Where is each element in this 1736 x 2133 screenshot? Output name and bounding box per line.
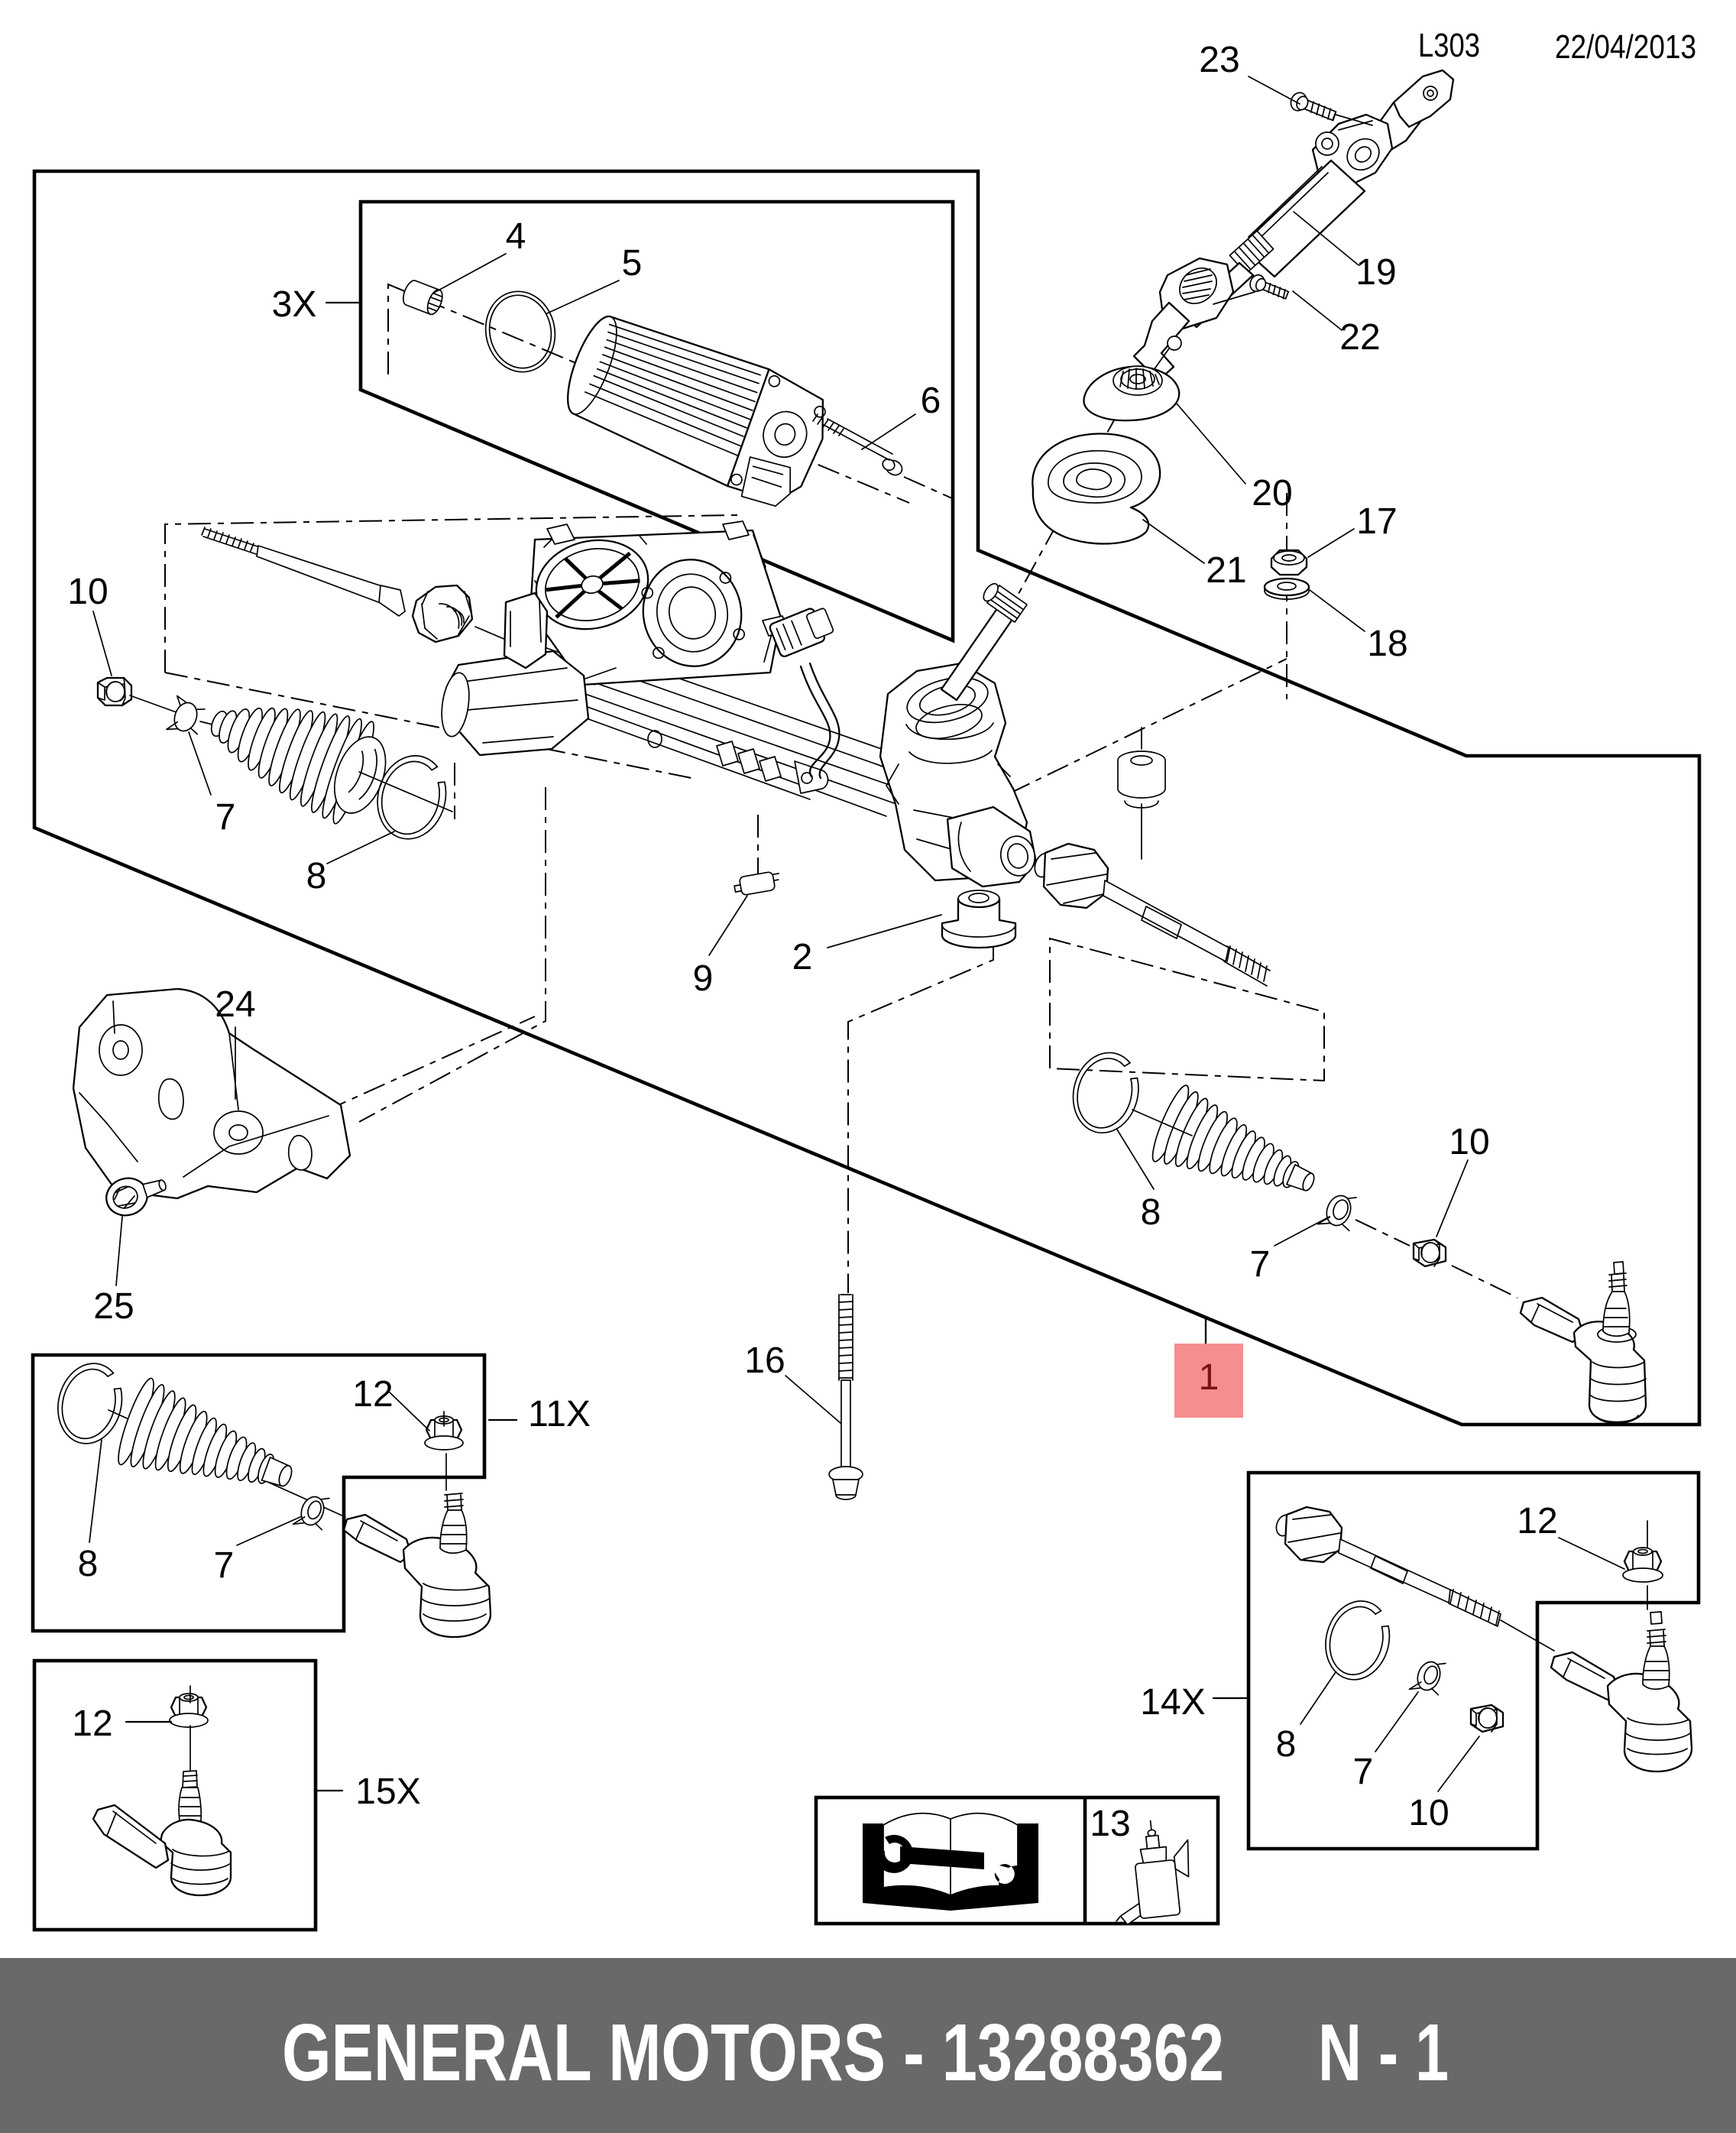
svg-text:12: 12 [1517, 1501, 1557, 1541]
svg-text:GENERAL MOTORS - 13288362: GENERAL MOTORS - 13288362 [282, 2008, 1224, 2098]
svg-text:3X: 3X [272, 284, 317, 325]
svg-text:22: 22 [1339, 317, 1380, 358]
svg-text:15X: 15X [355, 1772, 420, 1812]
svg-text:N - 1: N - 1 [1318, 2008, 1449, 2098]
svg-text:19: 19 [1355, 252, 1396, 293]
svg-text:21: 21 [1206, 550, 1246, 591]
svg-text:8: 8 [78, 1544, 99, 1584]
svg-text:2: 2 [792, 937, 813, 977]
svg-text:8: 8 [1141, 1192, 1161, 1233]
svg-text:18: 18 [1367, 624, 1407, 664]
svg-text:12: 12 [72, 1703, 112, 1744]
svg-text:25: 25 [93, 1286, 134, 1327]
svg-text:10: 10 [1408, 1793, 1449, 1833]
svg-text:13: 13 [1090, 1804, 1130, 1844]
svg-text:4: 4 [506, 216, 526, 257]
svg-text:7: 7 [1353, 1752, 1374, 1792]
svg-text:20: 20 [1252, 473, 1292, 514]
svg-text:11X: 11X [528, 1394, 591, 1434]
svg-text:17: 17 [1356, 501, 1397, 542]
svg-text:8: 8 [306, 856, 327, 896]
svg-text:23: 23 [1199, 40, 1239, 80]
svg-text:1: 1 [1199, 1357, 1219, 1398]
svg-text:14X: 14X [1140, 1682, 1205, 1723]
svg-text:8: 8 [1276, 1724, 1297, 1765]
svg-text:5: 5 [622, 243, 643, 284]
svg-text:10: 10 [1449, 1122, 1489, 1162]
svg-text:6: 6 [921, 381, 941, 421]
svg-text:16: 16 [744, 1340, 785, 1381]
svg-text:10: 10 [67, 572, 108, 612]
svg-text:L303: L303 [1418, 27, 1480, 64]
svg-text:22/04/2013: 22/04/2013 [1555, 28, 1696, 66]
svg-text:12: 12 [352, 1374, 393, 1415]
svg-text:9: 9 [693, 958, 714, 999]
svg-text:7: 7 [215, 797, 236, 838]
svg-text:24: 24 [215, 984, 255, 1025]
svg-text:7: 7 [1250, 1244, 1271, 1285]
svg-text:7: 7 [214, 1545, 235, 1586]
